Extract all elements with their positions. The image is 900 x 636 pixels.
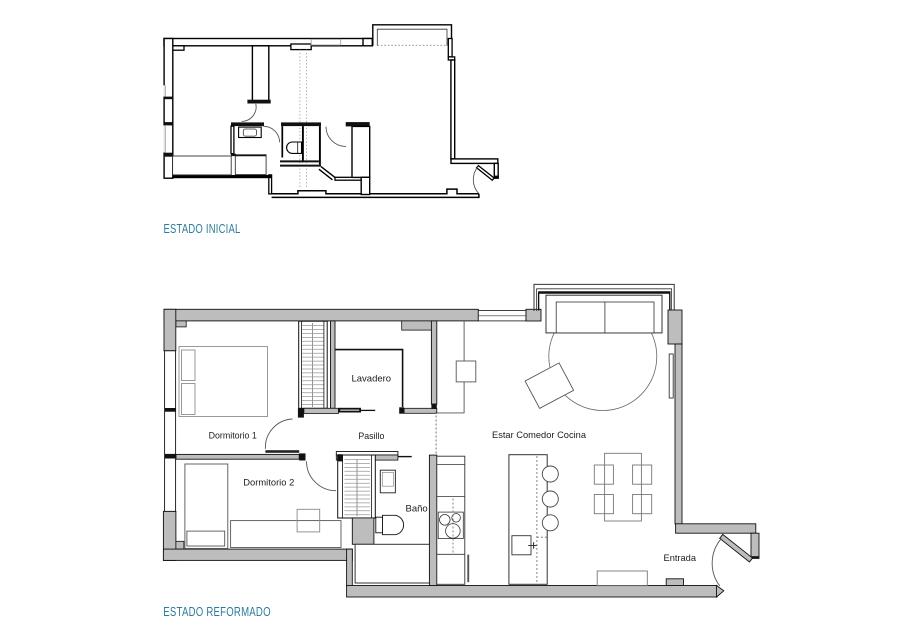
svg-text:Dormitorio 1: Dormitorio 1 xyxy=(209,430,257,441)
svg-text:Entrada: Entrada xyxy=(664,553,697,564)
svg-text:Baño: Baño xyxy=(406,504,428,515)
svg-text:Pasillo: Pasillo xyxy=(358,431,384,442)
svg-text:Dormitorio 2: Dormitorio 2 xyxy=(243,477,294,488)
svg-text:ESTADO REFORMADO: ESTADO REFORMADO xyxy=(163,605,270,619)
svg-text:Lavadero: Lavadero xyxy=(352,374,392,385)
svg-text:ESTADO INICIAL: ESTADO INICIAL xyxy=(164,222,241,236)
svg-text:Estar Comedor Cocina: Estar Comedor Cocina xyxy=(492,430,587,441)
